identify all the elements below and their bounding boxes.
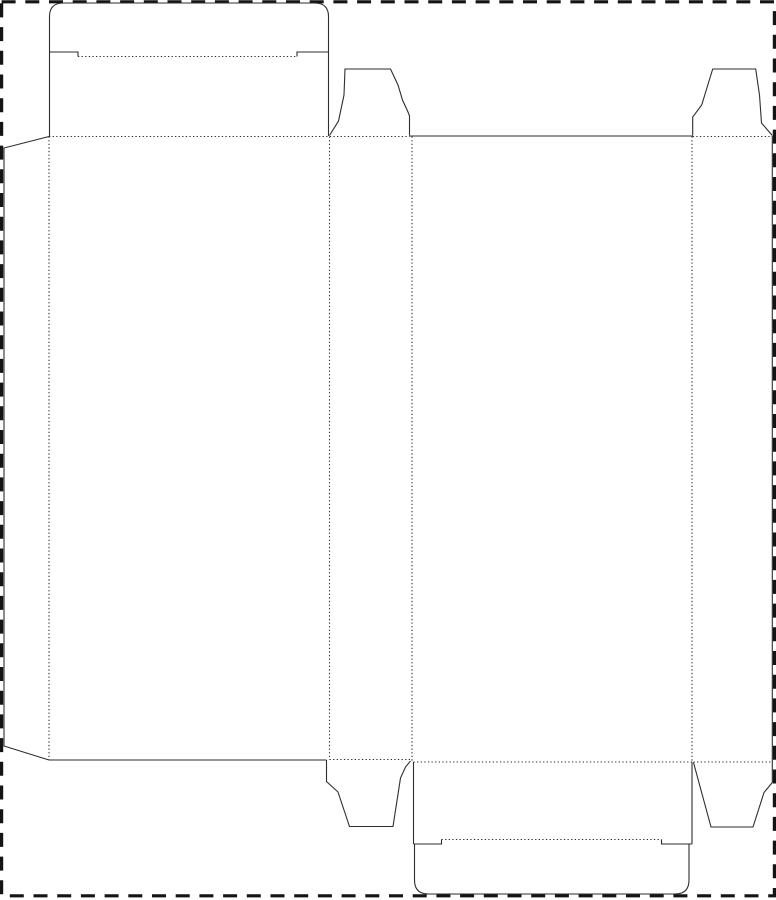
dust-flap-bottom-left-outline-cut-line xyxy=(327,760,411,827)
bottom-tuck-flap-outline-cut-line xyxy=(415,844,690,894)
top-tuck-notch-right-cut-line xyxy=(297,52,329,57)
bottom-tuck-notch-left-cut-line xyxy=(414,840,442,845)
top-tuck-notch-left-cut-line xyxy=(50,52,79,57)
top-tuck-flap-outline-cut-line xyxy=(50,3,329,52)
dieline-lines-group xyxy=(2,2,775,896)
dieline-svg xyxy=(0,0,776,900)
dust-flap-top-right-outline-cut-line xyxy=(693,69,773,136)
bottom-tuck-notch-right-cut-line xyxy=(662,840,693,845)
glue-flap-outline-cut-line xyxy=(4,137,49,761)
dust-flap-top-left-outline-cut-line xyxy=(330,69,410,136)
dieline-page xyxy=(0,0,776,900)
side-panel-right-edge-and-bottom-flap-cut-line xyxy=(694,136,773,827)
